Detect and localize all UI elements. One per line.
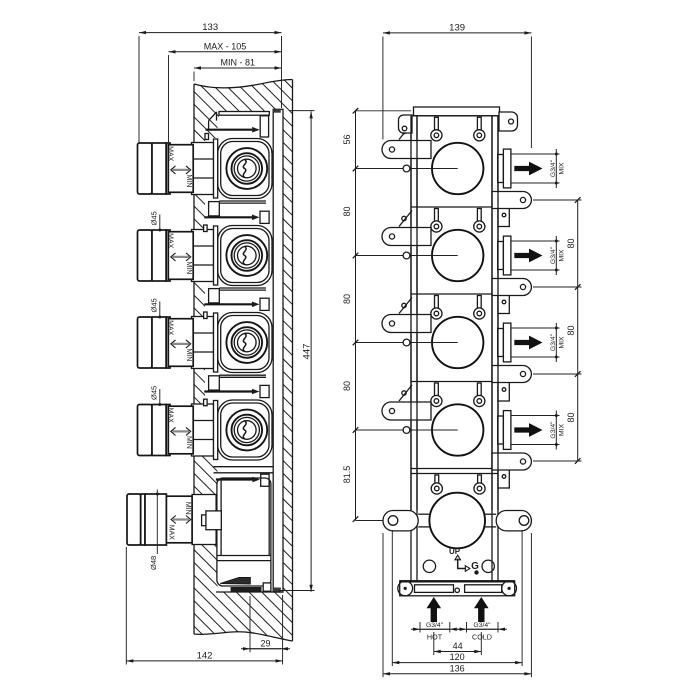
svg-text:80: 80 xyxy=(566,238,576,248)
svg-text:G3/4": G3/4" xyxy=(550,159,557,177)
svg-text:Ø45: Ø45 xyxy=(150,386,159,400)
svg-text:UP: UP xyxy=(449,547,461,556)
svg-text:80: 80 xyxy=(566,325,576,335)
svg-text:MIN: MIN xyxy=(185,436,192,449)
svg-text:MAX: MAX xyxy=(167,408,174,424)
svg-text:G: G xyxy=(471,561,479,572)
svg-text:G3/4": G3/4" xyxy=(550,246,557,264)
svg-text:136: 136 xyxy=(450,663,465,673)
svg-text:139: 139 xyxy=(449,22,465,33)
svg-text:MAX: MAX xyxy=(167,146,174,162)
svg-text:G3/4": G3/4" xyxy=(426,622,444,629)
svg-text:44: 44 xyxy=(453,641,463,651)
svg-text:MIN: MIN xyxy=(185,348,192,361)
svg-text:MIX: MIX xyxy=(558,249,565,262)
svg-text:80: 80 xyxy=(342,381,352,391)
svg-text:80: 80 xyxy=(566,412,576,422)
svg-text:MAX: MAX xyxy=(167,320,174,336)
svg-text:80: 80 xyxy=(342,294,352,304)
svg-text:G3/4": G3/4" xyxy=(550,333,557,351)
svg-text:MAX: MAX xyxy=(168,525,175,541)
svg-text:133: 133 xyxy=(202,22,218,33)
svg-text:MIN: MIN xyxy=(185,261,192,274)
svg-text:81.5: 81.5 xyxy=(342,466,352,484)
svg-text:447: 447 xyxy=(301,344,312,360)
svg-text:Ø45: Ø45 xyxy=(150,298,159,312)
svg-text:COLD: COLD xyxy=(472,633,492,642)
svg-text:MIN: MIN xyxy=(185,174,192,187)
svg-text:MIX: MIX xyxy=(558,162,565,175)
svg-text:Ø45: Ø45 xyxy=(150,211,159,225)
svg-text:MIN: MIN xyxy=(184,502,191,515)
svg-text:HOT: HOT xyxy=(427,633,443,642)
svg-text:142: 142 xyxy=(197,650,213,661)
svg-text:120: 120 xyxy=(450,652,465,662)
svg-text:G3/4": G3/4" xyxy=(550,421,557,439)
svg-text:G3/4": G3/4" xyxy=(473,622,491,629)
svg-text:29: 29 xyxy=(260,638,270,648)
svg-text:80: 80 xyxy=(342,206,352,216)
svg-text:MAX: MAX xyxy=(167,233,174,249)
svg-text:MIX: MIX xyxy=(558,336,565,349)
svg-text:56: 56 xyxy=(342,134,352,144)
svg-text:Ø48: Ø48 xyxy=(149,556,158,570)
svg-text:MIN - 81: MIN - 81 xyxy=(221,58,256,68)
svg-text:MAX - 105: MAX - 105 xyxy=(204,41,247,51)
svg-text:MIX: MIX xyxy=(558,423,565,436)
